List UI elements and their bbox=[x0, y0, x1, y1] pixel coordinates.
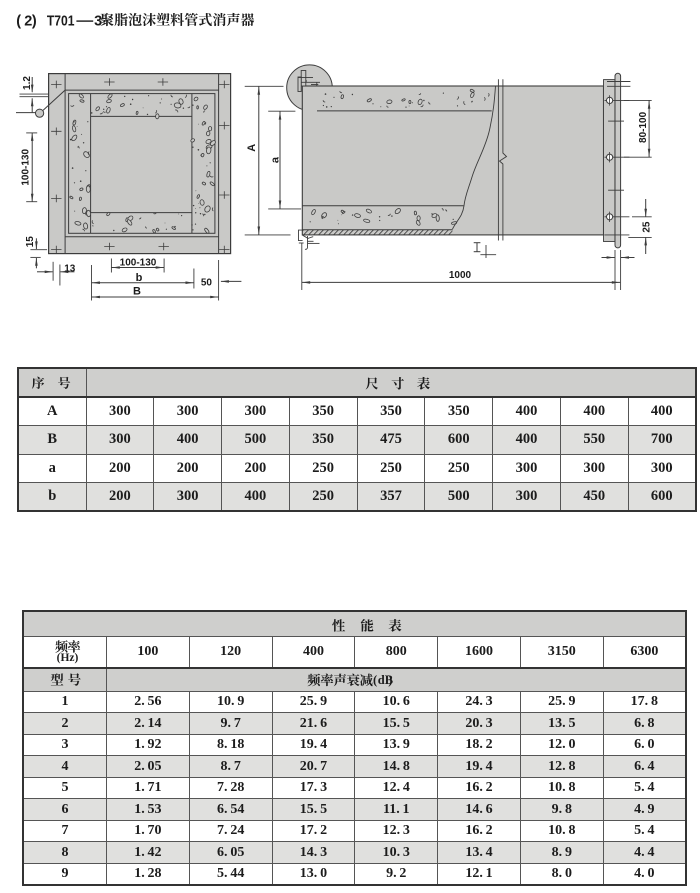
svg-text:): ) bbox=[32, 13, 37, 29]
svg-text:15: 15 bbox=[25, 236, 36, 248]
svg-text:25: 25 bbox=[641, 221, 652, 233]
svg-text:100-130: 100-130 bbox=[20, 149, 31, 186]
svg-text:b: b bbox=[136, 272, 143, 284]
svg-text:): ) bbox=[388, 673, 392, 687]
svg-text:(: ( bbox=[373, 673, 377, 687]
svg-text:1000: 1000 bbox=[449, 270, 472, 281]
svg-text:(Hz): (Hz) bbox=[57, 652, 79, 664]
svg-text:a: a bbox=[269, 156, 281, 163]
svg-text:100-130: 100-130 bbox=[120, 257, 157, 268]
svg-text:T701: T701 bbox=[47, 12, 75, 28]
svg-text:13: 13 bbox=[64, 263, 76, 274]
svg-text:50: 50 bbox=[201, 277, 213, 288]
svg-text:80-100: 80-100 bbox=[638, 111, 649, 143]
svg-text:B: B bbox=[133, 285, 141, 297]
svg-text:(: ( bbox=[16, 13, 21, 29]
svg-text:A: A bbox=[246, 144, 258, 152]
svg-text:3: 3 bbox=[94, 13, 102, 29]
svg-text:1.2: 1.2 bbox=[22, 76, 33, 90]
